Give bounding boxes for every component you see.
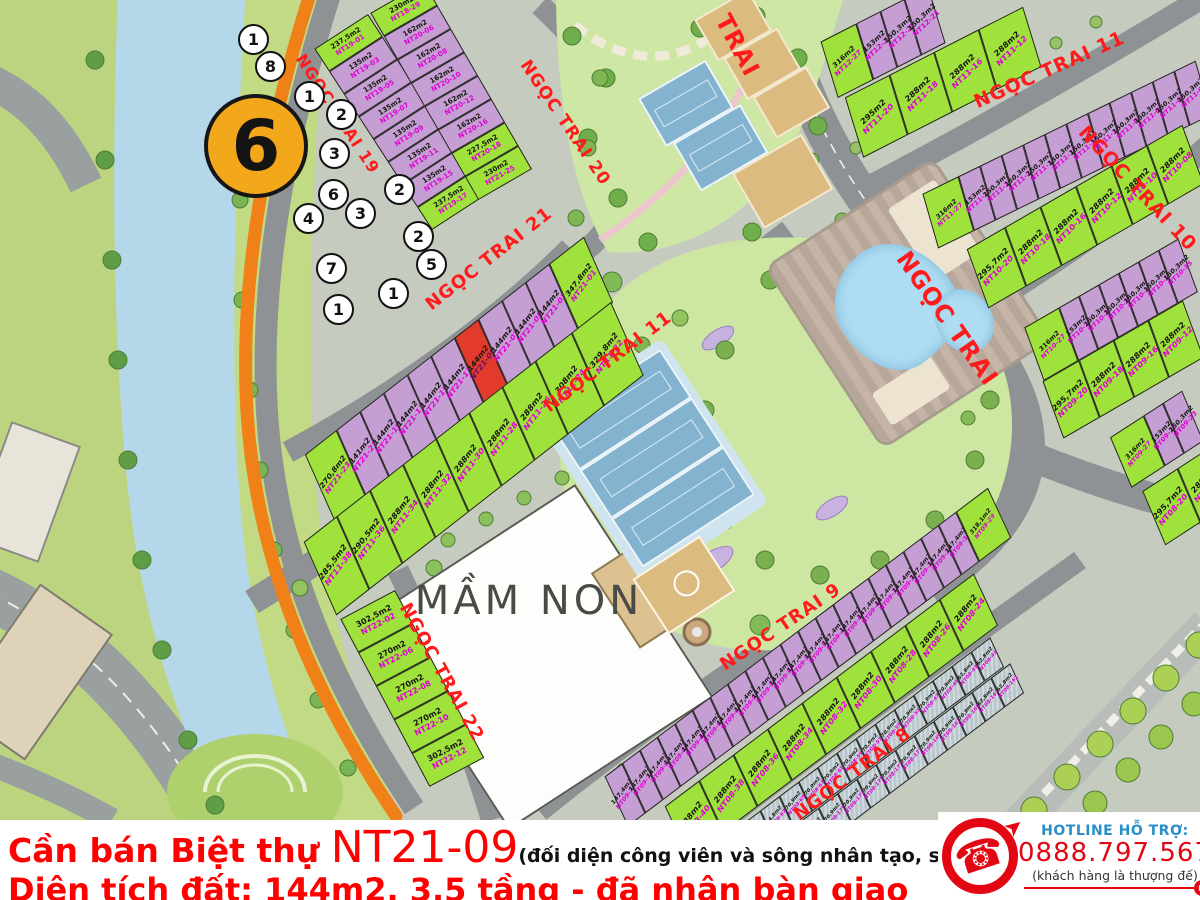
poi-marker-2: 2	[326, 99, 357, 130]
poi-marker-1: 1	[238, 24, 269, 55]
hotline-box: ☎ ➤ HOTLINE HỖ TRỢ: 0888.797.567 (khách …	[938, 812, 1200, 900]
poi-marker-6: 6	[318, 179, 349, 210]
poi-marker-2: 2	[403, 221, 434, 252]
banner-lot-code: NT21-09	[331, 822, 519, 873]
poi-marker-1: 1	[294, 81, 325, 112]
arrow-icon: ▶	[1194, 880, 1200, 896]
hotline-rule: ▶	[1024, 887, 1194, 889]
poi-marker-4: 4	[293, 203, 324, 234]
poi-marker-7: 7	[316, 253, 347, 284]
hotline-tagline: (khách hàng là thượng đế)	[1018, 869, 1200, 883]
phone-icon: ☎ ➤	[942, 818, 1018, 894]
master-plan-map: MẦM NON 6 237,5m2NT19-01135m2NT19-03135	[0, 0, 1200, 820]
poi-marker-5: 5	[416, 249, 447, 280]
poi-marker-3: 3	[345, 198, 376, 229]
hotline-number: 0888.797.567	[1018, 839, 1200, 869]
poi-marker-3: 3	[319, 138, 350, 169]
poi-marker-1: 1	[323, 294, 354, 325]
hotline-title: HOTLINE HỖ TRỢ:	[1018, 823, 1200, 839]
real-estate-map-ad: MẦM NON 6 237,5m2NT19-01135m2NT19-03135	[0, 0, 1200, 900]
banner-title: Cần bán Biệt thự	[8, 831, 331, 870]
poi-marker-2: 2	[384, 174, 415, 205]
poi-marker-1: 1	[378, 278, 409, 309]
phone-glyph-icon: ☎	[950, 829, 1010, 882]
zone-badge: 6	[204, 94, 308, 198]
kindergarten-label: MẦM NON	[396, 578, 662, 624]
poi-marker-8: 8	[255, 51, 286, 82]
